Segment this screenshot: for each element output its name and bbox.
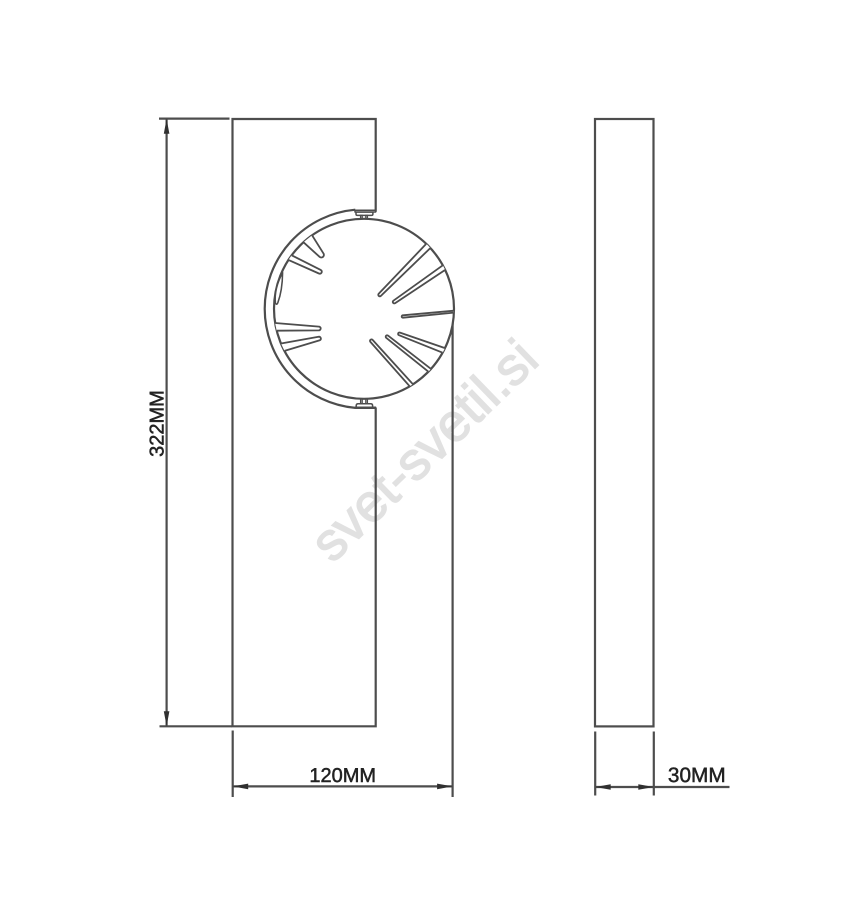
svg-text:322MM: 322MM	[147, 390, 169, 457]
svg-text:30MM: 30MM	[668, 764, 726, 787]
svg-text:120MM: 120MM	[309, 765, 376, 787]
